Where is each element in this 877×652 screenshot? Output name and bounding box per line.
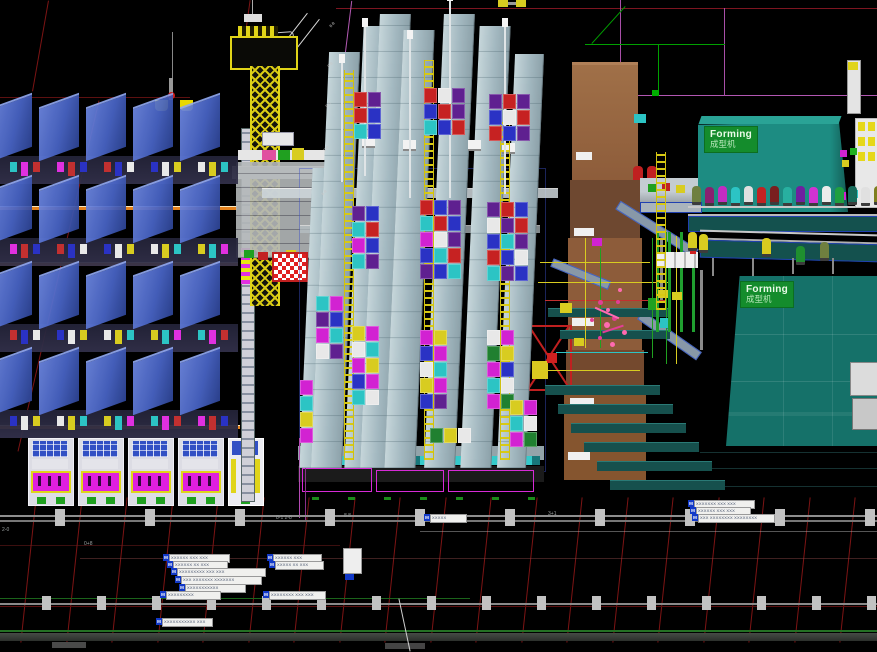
machine-internals-dot bbox=[80, 330, 87, 340]
storage-box bbox=[448, 232, 461, 247]
machine-internals-dot bbox=[57, 162, 64, 172]
machine-internals-dot bbox=[174, 330, 181, 340]
storage-box bbox=[330, 296, 343, 311]
machine-internals-dot bbox=[10, 416, 17, 426]
cad-line-y3 bbox=[540, 370, 640, 371]
storage-box bbox=[368, 92, 381, 107]
storage-box bbox=[489, 126, 502, 141]
storage-box bbox=[366, 238, 379, 253]
storage-box bbox=[316, 328, 329, 343]
wall-column bbox=[867, 596, 876, 610]
front-machine-foot bbox=[87, 497, 96, 504]
machine-internals-dot bbox=[209, 162, 216, 176]
green-dash bbox=[384, 497, 391, 500]
floor-band-gray bbox=[0, 633, 877, 641]
front-machine-slit bbox=[48, 476, 51, 486]
machine-top[interactable] bbox=[180, 175, 220, 244]
sensor-pole-cap bbox=[447, 0, 453, 1]
wall-column bbox=[427, 596, 436, 610]
conveyor-support-2 bbox=[752, 258, 754, 276]
green-rack-yellow-2 bbox=[672, 292, 682, 300]
sensor-pole bbox=[341, 62, 343, 182]
bottle bbox=[848, 186, 857, 205]
storage-box bbox=[300, 396, 313, 411]
machine-internals-dot bbox=[174, 162, 181, 172]
machine-internals-dot bbox=[221, 416, 228, 426]
storage-box bbox=[487, 362, 500, 377]
wall-column bbox=[97, 596, 106, 610]
machine-internals-dot bbox=[162, 330, 169, 344]
cad-viewport[interactable]: Cle=W bbox=[0, 0, 877, 652]
machine-internals-dot bbox=[21, 416, 28, 430]
sensor-pole-cap bbox=[339, 54, 345, 63]
annotation-label[interactable]: MXXXXXX XXX XXX bbox=[163, 554, 230, 561]
storage-box bbox=[438, 88, 451, 103]
machine-internals-dot bbox=[151, 244, 158, 254]
corner-gray-1 bbox=[52, 642, 86, 648]
storage-box bbox=[510, 432, 523, 447]
front-machine-foot bbox=[187, 497, 196, 504]
green-dash bbox=[420, 497, 427, 500]
storage-box bbox=[366, 254, 379, 269]
storage-box bbox=[420, 248, 433, 263]
right-tower-small-cap bbox=[848, 62, 858, 70]
machine-internals-dot bbox=[104, 162, 111, 172]
storage-box bbox=[487, 202, 500, 217]
wall-column bbox=[152, 596, 161, 610]
machine-top[interactable] bbox=[180, 347, 220, 416]
storage-box bbox=[424, 88, 437, 103]
right-floor-line-1 bbox=[700, 452, 877, 453]
front-machine-slit bbox=[188, 476, 191, 486]
storage-box bbox=[368, 108, 381, 123]
storage-box bbox=[420, 378, 433, 393]
rack-sign bbox=[468, 140, 481, 151]
conveyor-deck-2 bbox=[700, 240, 877, 263]
storage-box bbox=[501, 234, 514, 249]
elevator-platform[interactable] bbox=[230, 36, 298, 70]
front-machine-slit bbox=[88, 476, 91, 486]
storage-box bbox=[420, 394, 433, 409]
machine-top[interactable] bbox=[39, 261, 79, 330]
storage-box bbox=[515, 266, 528, 281]
machine-internals-dot bbox=[127, 416, 134, 426]
green-dash bbox=[348, 497, 355, 500]
annotation-text: XXX XXXXXXXX XXXXXXXX bbox=[698, 514, 775, 523]
storage-box bbox=[501, 250, 514, 265]
machine-internals-dot bbox=[10, 330, 17, 340]
wall-column bbox=[482, 596, 491, 610]
storage-box bbox=[434, 346, 447, 361]
bottle bbox=[692, 186, 701, 205]
storage-box bbox=[300, 380, 313, 395]
machine-internals-dot bbox=[151, 162, 158, 172]
storage-box bbox=[501, 362, 514, 377]
machine-internals-dot bbox=[104, 416, 111, 426]
cad-box-m1 bbox=[592, 238, 602, 246]
front-machine-foot bbox=[137, 497, 146, 504]
bottle bbox=[757, 187, 766, 206]
forming-machine-1-topface bbox=[699, 116, 842, 124]
front-machine-foot bbox=[106, 497, 115, 504]
scribble-dot bbox=[604, 322, 610, 328]
machine-internals-dot bbox=[68, 416, 75, 430]
wall-column bbox=[592, 596, 601, 610]
storage-box bbox=[487, 346, 500, 361]
machine-internals-dot bbox=[115, 162, 122, 176]
annotation-text: XXXXX bbox=[430, 514, 467, 523]
annotation-label[interactable]: MXXX XXXXXXXX XXXXXXXX bbox=[692, 514, 775, 521]
right-tower-cell-2 bbox=[868, 122, 875, 131]
bottle bbox=[796, 246, 805, 265]
storage-box bbox=[420, 232, 433, 247]
storage-box bbox=[434, 378, 447, 393]
wall-column bbox=[372, 596, 381, 610]
storage-box bbox=[434, 264, 447, 279]
storage-box bbox=[515, 250, 528, 265]
sensor-pole-cap bbox=[362, 18, 368, 27]
green-rack-strip-3 bbox=[680, 232, 683, 332]
green-chip bbox=[652, 90, 659, 96]
ruler-tick: 8 8 bbox=[344, 513, 351, 519]
storage-box bbox=[434, 248, 447, 263]
ruler-tick: 8-1 2-8 bbox=[276, 515, 292, 521]
white-note-box bbox=[343, 548, 362, 574]
storage-box bbox=[434, 394, 447, 409]
front-machine-mid bbox=[182, 459, 218, 469]
storage-box bbox=[517, 94, 530, 109]
machine-top[interactable] bbox=[39, 347, 79, 416]
machine-internals-dot bbox=[127, 162, 134, 172]
storage-box bbox=[487, 330, 500, 345]
ruler-tick: 0+8 bbox=[84, 541, 92, 547]
storage-box bbox=[489, 94, 502, 109]
cad-line-c1 bbox=[556, 352, 648, 353]
storage-box bbox=[517, 126, 530, 141]
machine-top[interactable] bbox=[180, 261, 220, 330]
machine-top[interactable] bbox=[86, 347, 126, 416]
sensor-pole bbox=[409, 38, 411, 198]
storage-box bbox=[368, 124, 381, 139]
storage-box bbox=[510, 400, 523, 415]
grid-line-magenta-v2 bbox=[724, 8, 725, 96]
storage-box bbox=[444, 428, 457, 443]
storage-box bbox=[448, 200, 461, 215]
front-machine-mid bbox=[32, 459, 68, 469]
storage-box bbox=[434, 200, 447, 215]
machine-internals-dot bbox=[115, 416, 122, 430]
machine-internals-dot bbox=[198, 416, 205, 426]
scribble-dot bbox=[598, 300, 603, 305]
front-machine-slit bbox=[138, 476, 141, 486]
right-dot-yellow bbox=[842, 160, 849, 167]
machine-top[interactable] bbox=[39, 93, 79, 162]
storage-box bbox=[330, 344, 343, 359]
storage-box bbox=[489, 110, 502, 125]
machine-internals-dot bbox=[57, 330, 64, 340]
bottle bbox=[762, 238, 771, 257]
annotation-text: XXXXXXXXX bbox=[166, 591, 221, 600]
machine-top[interactable] bbox=[0, 261, 32, 330]
bottle bbox=[770, 186, 779, 205]
green-dash bbox=[528, 497, 535, 500]
storage-box bbox=[366, 326, 379, 341]
cad-line-v2 bbox=[600, 248, 601, 348]
machine-internals-dot bbox=[21, 244, 28, 258]
storage-box bbox=[352, 374, 365, 389]
grid-line-red-top bbox=[336, 8, 877, 9]
lattice-mast bbox=[656, 152, 666, 310]
front-machine-window bbox=[132, 441, 168, 457]
annotation-label[interactable]: MXXXXXXXXXXX bbox=[179, 584, 246, 591]
machine-internals-dot bbox=[68, 244, 75, 258]
front-machine[interactable] bbox=[178, 438, 224, 506]
machine-internals-dot bbox=[174, 244, 181, 254]
front-machine-window bbox=[182, 441, 218, 457]
storage-box bbox=[354, 124, 367, 139]
machine-internals-dot bbox=[127, 244, 134, 254]
forming-machine-2-line-h1 bbox=[726, 334, 877, 335]
front-machine[interactable] bbox=[28, 438, 74, 506]
front-machine-slit bbox=[148, 476, 151, 486]
storage-box bbox=[424, 104, 437, 119]
bottle bbox=[835, 187, 844, 206]
storage-box bbox=[430, 428, 443, 443]
storage-box bbox=[448, 264, 461, 279]
storage-box bbox=[420, 264, 433, 279]
storage-box bbox=[503, 126, 516, 141]
variant-bar-right bbox=[255, 459, 260, 493]
annotation-label[interactable]: MXXXXXXX XXX XXX bbox=[688, 500, 755, 507]
storage-box bbox=[366, 358, 379, 373]
machine-internals-dot bbox=[104, 244, 111, 254]
forming-machine-2-line-v2 bbox=[832, 276, 833, 446]
wall-column bbox=[505, 509, 515, 526]
machine-top[interactable] bbox=[39, 175, 79, 244]
storage-box bbox=[352, 390, 365, 405]
annotation-label[interactable]: MXXXXXX XXX XXX bbox=[690, 507, 751, 514]
storage-box bbox=[501, 202, 514, 217]
conveyor-support-1 bbox=[712, 258, 714, 276]
storage-box bbox=[434, 216, 447, 231]
x-frame-red-dot bbox=[547, 353, 557, 363]
machine-internals-dot bbox=[162, 244, 169, 258]
front-machine[interactable] bbox=[128, 438, 174, 506]
annotation-label[interactable]: MXXXXXX XX XXX bbox=[167, 561, 228, 568]
cad-box-y1 bbox=[560, 303, 572, 313]
machine-top[interactable] bbox=[133, 261, 173, 330]
annotation-label[interactable]: MXXXXXXXX XXX XXX bbox=[263, 591, 326, 598]
storage-box bbox=[352, 238, 365, 253]
module-pink bbox=[262, 150, 276, 160]
storage-box bbox=[354, 108, 367, 123]
storage-box bbox=[352, 222, 365, 237]
storage-box bbox=[452, 104, 465, 119]
wall-column bbox=[595, 509, 605, 526]
forming-machine-1-label: Forming 成型机 bbox=[704, 126, 758, 153]
scribble-dot bbox=[598, 336, 602, 340]
machine-internals-dot bbox=[115, 244, 122, 258]
machine-internals-dot bbox=[33, 330, 40, 340]
machine-internals-dot bbox=[198, 162, 205, 172]
machine-top[interactable] bbox=[133, 347, 173, 416]
grid-line-red-diagonal bbox=[32, 1, 49, 92]
machine-internals-dot bbox=[127, 330, 134, 340]
platform-dot-yellow bbox=[676, 185, 685, 193]
sensor-pole-cap bbox=[407, 30, 413, 39]
storage-box bbox=[501, 218, 514, 233]
machine-internals-dot bbox=[221, 330, 228, 340]
annotation-label[interactable]: MXXXXX bbox=[424, 514, 467, 521]
storage-box bbox=[448, 216, 461, 231]
floor-line-green-2 bbox=[0, 630, 877, 632]
machine-internals-dot bbox=[21, 162, 28, 176]
front-machine-mid bbox=[82, 459, 118, 469]
machine-internals-dot bbox=[21, 330, 28, 344]
magenta-outline-1 bbox=[302, 468, 372, 492]
machine-internals-dot bbox=[162, 416, 169, 430]
annotation-label[interactable]: MXXXXX XX XXX bbox=[269, 561, 324, 568]
storage-box bbox=[420, 200, 433, 215]
annotation-text: XXXXXXXX XXX XXX bbox=[269, 591, 326, 600]
storage-box bbox=[524, 432, 537, 447]
ruler-tick: 2-0 bbox=[2, 527, 9, 533]
elevator-top-chip bbox=[244, 14, 262, 22]
front-machine-panel bbox=[131, 471, 171, 493]
storage-box bbox=[420, 362, 433, 377]
storage-box bbox=[366, 390, 379, 405]
storage-box bbox=[366, 342, 379, 357]
machine-internals-dot bbox=[68, 162, 75, 176]
storage-box bbox=[503, 94, 516, 109]
storage-box bbox=[352, 326, 365, 341]
storage-box bbox=[452, 120, 465, 135]
storage-box bbox=[316, 344, 329, 359]
machine-internals-dot bbox=[33, 416, 40, 426]
annotation-label[interactable]: MXXXXXXXXX bbox=[160, 591, 221, 598]
cad-box-y2 bbox=[574, 338, 584, 346]
magenta-outline-2 bbox=[376, 470, 444, 492]
annotation-label[interactable]: MXXXXXXXXX XXX XXX bbox=[171, 568, 266, 575]
storage-box bbox=[352, 206, 365, 221]
front-machine-slit bbox=[158, 476, 161, 486]
storage-box bbox=[366, 374, 379, 389]
bottle bbox=[699, 234, 708, 253]
elevator-crown bbox=[238, 26, 278, 36]
conveyor-step bbox=[558, 404, 673, 414]
machine-top[interactable] bbox=[86, 93, 126, 162]
forming-machine-1-subtitle: 成型机 bbox=[710, 140, 752, 149]
storage-box bbox=[352, 254, 365, 269]
floor-faint-line-3 bbox=[0, 545, 340, 546]
front-machine-foot bbox=[37, 497, 46, 504]
scribble-dot bbox=[610, 342, 615, 347]
machine-internals-dot bbox=[10, 162, 17, 172]
machine-internals-dot bbox=[80, 162, 87, 172]
front-machine-window bbox=[32, 441, 68, 457]
front-machine[interactable] bbox=[78, 438, 124, 506]
cad-line-y1 bbox=[540, 262, 650, 263]
annotation-text: XXXXXXXXXXX XXX bbox=[162, 618, 213, 627]
machine-internals-dot bbox=[198, 244, 205, 254]
bottle bbox=[861, 187, 870, 206]
machine-top[interactable] bbox=[0, 175, 32, 244]
storage-box bbox=[300, 412, 313, 427]
module-green bbox=[278, 150, 290, 160]
bottle bbox=[688, 232, 697, 251]
machine-internals-dot bbox=[80, 416, 87, 426]
front-machine-panel bbox=[81, 471, 121, 493]
storage-box bbox=[352, 342, 365, 357]
machine-internals-dot bbox=[151, 330, 158, 340]
storage-box bbox=[434, 232, 447, 247]
bottle bbox=[744, 186, 753, 205]
machine-top[interactable] bbox=[0, 93, 32, 162]
carton-label-2 bbox=[574, 228, 594, 236]
machine-top[interactable] bbox=[133, 175, 173, 244]
storage-box bbox=[515, 234, 528, 249]
bottle bbox=[822, 186, 831, 205]
floor-faint-line-1 bbox=[420, 531, 877, 532]
front-machine-window bbox=[82, 441, 118, 457]
front-machine-panel bbox=[31, 471, 71, 493]
storage-box bbox=[448, 248, 461, 263]
machine-internals-dot bbox=[174, 416, 181, 426]
annotation-text: XXXXX XX XXX bbox=[275, 561, 324, 570]
front-machine-foot bbox=[156, 497, 165, 504]
cad-line-y2 bbox=[538, 282, 668, 283]
storage-box bbox=[501, 266, 514, 281]
front-machine-foot bbox=[56, 497, 65, 504]
conveyor-support-4 bbox=[832, 258, 834, 274]
carton-label-1 bbox=[576, 152, 592, 160]
annotation-label[interactable]: MXXX XXXXXXX XXXXXXX bbox=[175, 576, 262, 583]
machine-top[interactable] bbox=[133, 93, 173, 162]
right-tower-cell-3 bbox=[858, 137, 865, 146]
wall-column bbox=[757, 596, 766, 610]
machine-internals-dot bbox=[33, 162, 40, 172]
green-dash bbox=[312, 497, 319, 500]
machine-top[interactable] bbox=[86, 175, 126, 244]
ramp-support-2 bbox=[700, 270, 703, 350]
floor-line-darkred bbox=[0, 606, 877, 607]
front-machine-slit bbox=[108, 476, 111, 486]
wall-column bbox=[812, 596, 821, 610]
storage-box bbox=[300, 428, 313, 443]
storage-box bbox=[501, 378, 514, 393]
machine-top[interactable] bbox=[86, 261, 126, 330]
storage-box bbox=[515, 218, 528, 233]
conveyor-step bbox=[571, 423, 686, 433]
bottle bbox=[783, 187, 792, 206]
machine-internals-dot bbox=[57, 416, 64, 426]
machine-internals-dot bbox=[80, 244, 87, 254]
conveyor-rail-1a bbox=[688, 206, 877, 208]
storage-box bbox=[510, 416, 523, 431]
machine-internals-dot bbox=[209, 244, 216, 258]
storage-box bbox=[434, 362, 447, 377]
annotation-label[interactable]: MXXXXXXXXXXX XXX bbox=[156, 618, 213, 625]
front-machine-slit bbox=[58, 476, 61, 486]
storage-box bbox=[517, 110, 530, 125]
cyan-chip bbox=[634, 114, 646, 123]
storage-box bbox=[487, 218, 500, 233]
cad-line-r1 bbox=[545, 300, 665, 301]
wall-line-b bbox=[0, 603, 877, 605]
conveyor-step bbox=[610, 480, 725, 490]
scribble-dot bbox=[616, 300, 620, 304]
annotation-label[interactable]: MXXXXXX XXX bbox=[267, 554, 322, 561]
